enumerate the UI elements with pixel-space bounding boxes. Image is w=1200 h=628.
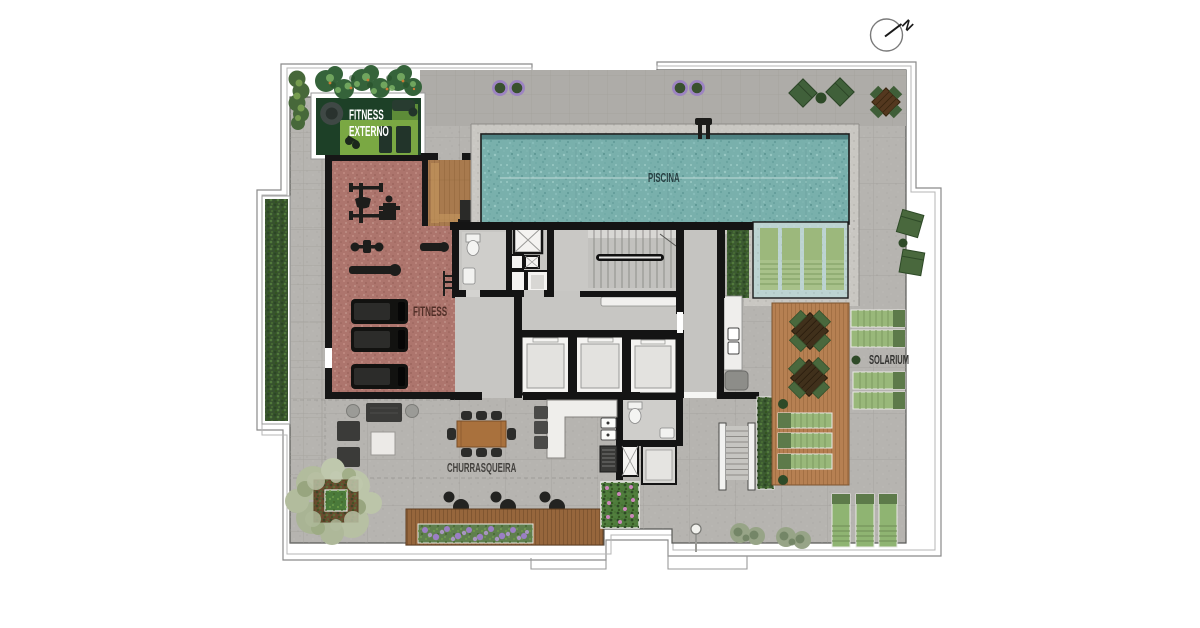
svg-text:CHURRASQUEIRA: CHURRASQUEIRA (447, 461, 517, 476)
svg-text:EXTERNO: EXTERNO (349, 122, 389, 139)
svg-text:PISCINA: PISCINA (648, 171, 680, 186)
svg-text:FITNESS: FITNESS (349, 106, 384, 123)
svg-text:FITNESS: FITNESS (413, 305, 447, 320)
svg-text:SOLARIUM: SOLARIUM (869, 354, 909, 367)
